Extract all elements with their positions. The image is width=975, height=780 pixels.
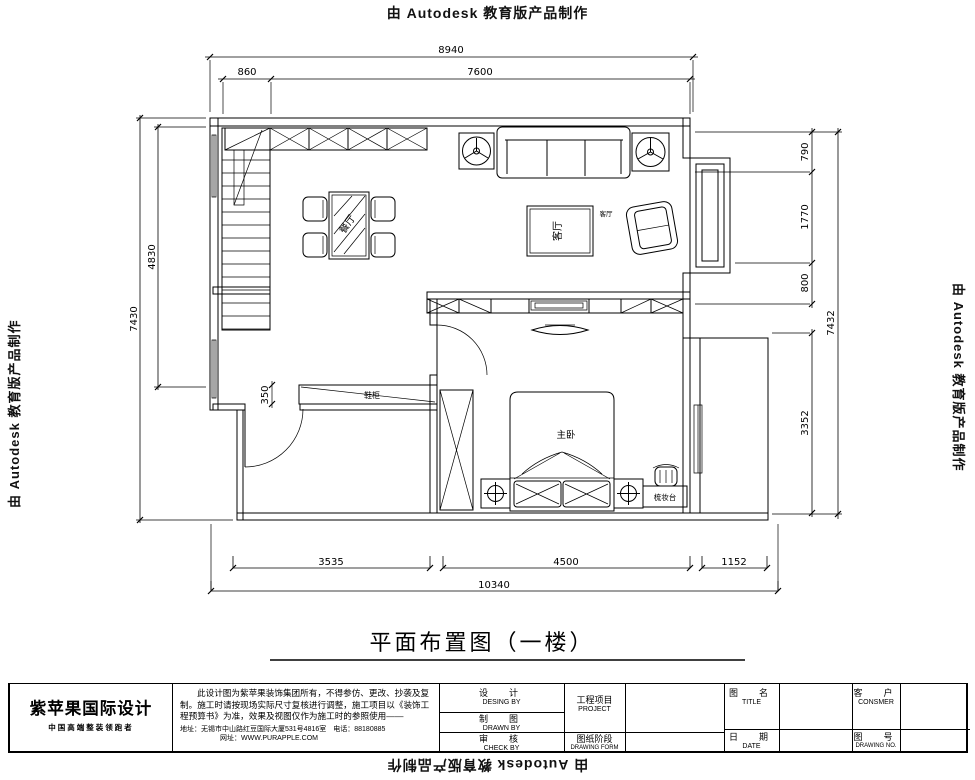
bed: [510, 392, 614, 511]
bedroom-door: [437, 325, 487, 375]
company-slogan: 中国高端整装领跑者: [10, 722, 172, 733]
project-value[interactable]: [625, 684, 724, 732]
disclaimer: 此设计图为紫苹果装饰集团所有，不得参仿、更改、抄袭及复 制。施工时请按现场实际尺…: [176, 684, 436, 751]
walls: [210, 118, 768, 520]
tv-cabinet: [427, 299, 683, 313]
company-logo: 紫苹果国际设计 中国高端整装领跑者: [10, 684, 172, 751]
dining-room-label: 餐厅: [336, 212, 358, 236]
field-check: 审 核 CHECK BY: [439, 732, 564, 752]
svg-text:3535: 3535: [318, 557, 343, 568]
master-bedroom-label: 主卧: [556, 429, 576, 441]
tv-icon: [532, 325, 588, 335]
field-stage: 图纸阶段 DRAWING FORM: [564, 732, 625, 751]
dimension-lines: [140, 57, 838, 591]
field-design: 设 计 DESING BY: [439, 684, 564, 706]
svg-text:8940: 8940: [438, 45, 463, 56]
field-label-cn: 图 号: [852, 730, 900, 743]
title-value[interactable]: [779, 684, 852, 729]
field-label-cn: 客 户: [852, 686, 900, 699]
title-block: 紫苹果国际设计 中国高端整装领跑者 此设计图为紫苹果装饰集团所有，不得参仿、更改…: [8, 683, 968, 753]
field-label-cn: 制 图: [439, 712, 564, 725]
field-project: 工程项目 PROJECT: [564, 684, 625, 732]
floor-plan-canvas: 客厅 客厅 餐厅 鞋柜: [0, 0, 975, 680]
dimension-labels: 8940 860 7600 7430 4830 350 790 1770 800…: [129, 45, 837, 591]
company-address: 地址：无锡市中山路红豆国际大厦531号4816室 电话：88180885: [180, 725, 434, 734]
field-customer: 客 户 CONSMER: [852, 684, 900, 706]
field-label-cn: 审 核: [439, 732, 564, 745]
svg-text:7430: 7430: [129, 306, 140, 331]
field-label-en: TITLE: [724, 699, 779, 706]
entry-door: [245, 409, 303, 467]
field-label-en: DESING BY: [439, 699, 564, 706]
company-website: 网址：WWW.PURAPPLE.COM: [180, 734, 434, 743]
disclaimer-line: 程预算书》为准，效果及视图仅作为施工时的参照使用——: [180, 711, 434, 723]
nightstand-left: [481, 479, 510, 508]
svg-text:4500: 4500: [553, 557, 578, 568]
cabinet-row-top: [225, 128, 427, 150]
fan-icon-left: [459, 133, 494, 169]
company-name: 紫苹果国际设计: [10, 695, 172, 719]
dresser-label: 梳妆台: [654, 492, 677, 502]
staircase: [222, 128, 270, 330]
field-label-en: CHECK BY: [439, 745, 564, 752]
customer-value[interactable]: [900, 684, 970, 729]
svg-text:4830: 4830: [147, 244, 158, 269]
disclaimer-line: 此设计图为紫苹果装饰集团所有，不得参仿、更改、抄袭及复: [180, 688, 434, 700]
field-label-cn: 图纸阶段: [564, 732, 625, 745]
field-date: 日 期 DATE: [724, 729, 779, 750]
field-label-en: DRAWN BY: [439, 725, 564, 732]
svg-text:3352: 3352: [800, 410, 811, 435]
field-label-cn: 设 计: [439, 686, 564, 699]
divider: [172, 684, 173, 751]
field-drawn: 制 图 DRAWN BY: [439, 712, 564, 732]
field-label-en: CONSMER: [852, 699, 900, 706]
field-label-cn: 图 名: [724, 686, 779, 699]
field-label-en: DRAWING FORM: [564, 745, 625, 751]
living-room-label: 客厅: [551, 221, 564, 241]
svg-text:1152: 1152: [721, 557, 746, 568]
svg-text:7600: 7600: [467, 67, 492, 78]
bay-window-bedroom: [690, 338, 768, 513]
svg-text:7432: 7432: [826, 310, 837, 335]
field-drawing-no: 图 号 DRAWING NO.: [852, 729, 900, 749]
autodesk-watermark-bottom: 由 Autodesk 教育版产品制作: [0, 755, 975, 775]
sofa: [497, 127, 630, 178]
drawing-title: 平面布置图（一楼）: [369, 631, 594, 656]
fan-icon-right: [632, 133, 669, 171]
svg-text:800: 800: [800, 273, 811, 292]
window-left-lower: [212, 340, 216, 398]
nightstand-right: [614, 479, 643, 508]
disclaimer-line: 制。施工时请按现场实际尺寸复核进行调整，施工项目以《装饰工: [180, 700, 434, 712]
living-room-label-small: 客厅: [600, 209, 614, 218]
window-left-upper: [212, 135, 216, 197]
bay-window-living: [690, 158, 730, 273]
field-title: 图 名 TITLE: [724, 684, 779, 706]
svg-text:790: 790: [800, 142, 811, 161]
field-label-en: PROJECT: [564, 706, 625, 713]
svg-text:350: 350: [260, 385, 271, 404]
field-label-cn: 日 期: [724, 730, 779, 743]
field-label-en: DRAWING NO.: [852, 743, 900, 749]
wardrobe: [440, 390, 473, 510]
field-label-cn: 工程项目: [564, 693, 625, 706]
svg-text:10340: 10340: [478, 580, 510, 591]
svg-text:1770: 1770: [800, 204, 811, 229]
dimension-extension-lines: [136, 60, 842, 591]
shoe-cabinet-label: 鞋柜: [364, 390, 380, 400]
field-label-en: DATE: [724, 743, 779, 750]
svg-text:860: 860: [237, 67, 256, 78]
armchair: [625, 200, 679, 255]
